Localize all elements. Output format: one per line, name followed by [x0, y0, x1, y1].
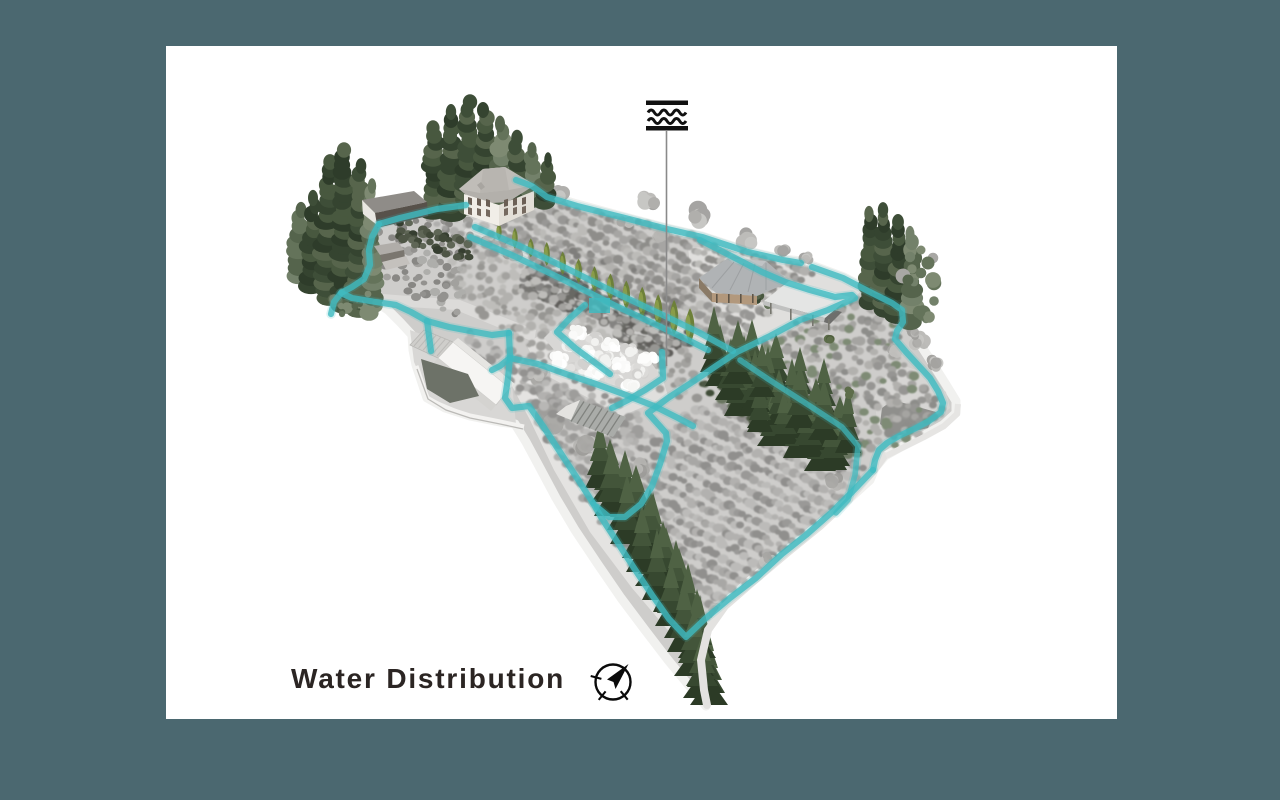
- svg-text:Water Distribution: Water Distribution: [291, 663, 565, 694]
